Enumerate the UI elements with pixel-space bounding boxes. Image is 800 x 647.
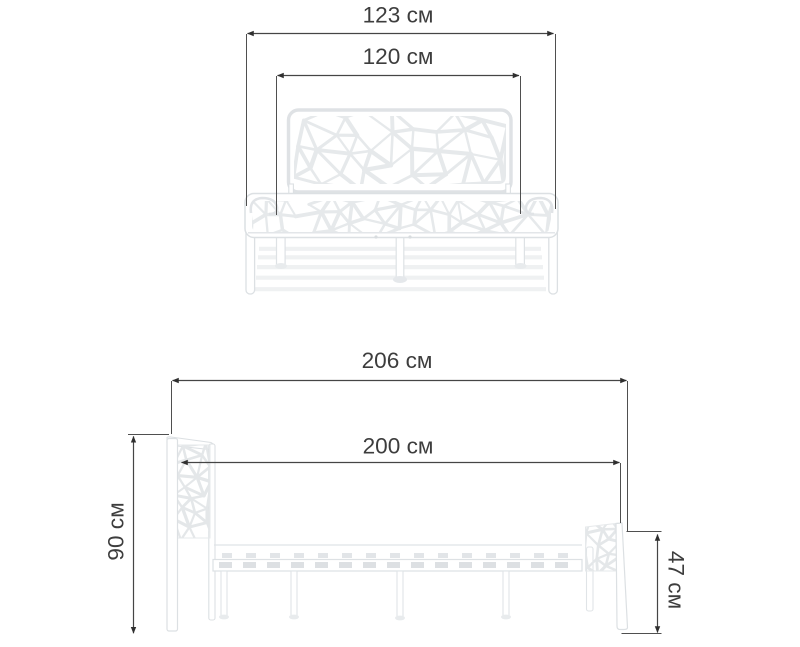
svg-text:47 см: 47 см: [664, 551, 689, 609]
svg-text:120 см: 120 см: [363, 44, 434, 69]
svg-text:200 см: 200 см: [363, 434, 434, 459]
svg-text:123 см: 123 см: [363, 3, 434, 28]
svg-text:206 см: 206 см: [362, 348, 433, 373]
svg-text:90 см: 90 см: [104, 502, 129, 560]
